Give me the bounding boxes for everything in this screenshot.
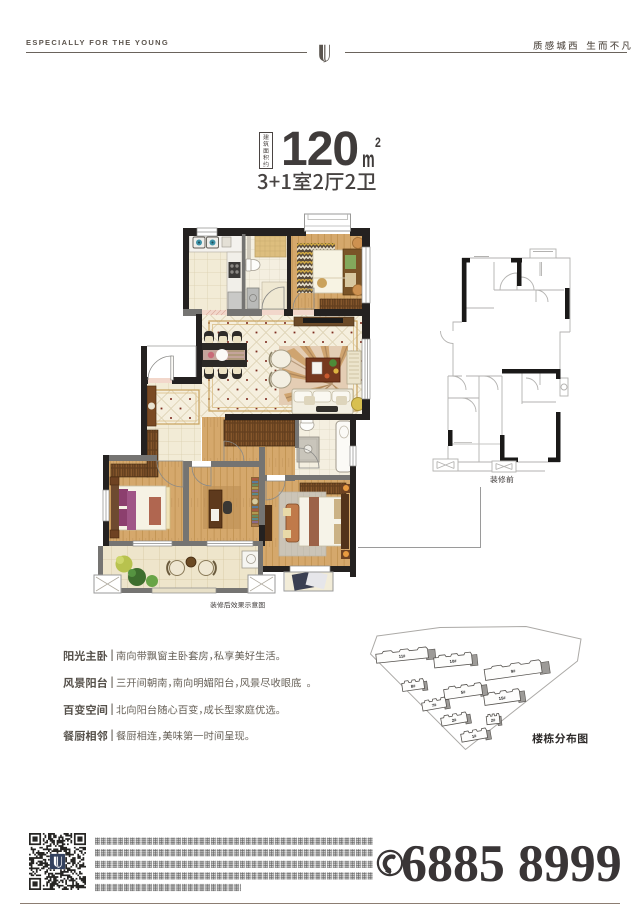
svg-text:15#: 15# [498, 695, 506, 701]
svg-text:10#: 10# [449, 658, 457, 664]
svg-text:11#: 11# [398, 653, 406, 659]
